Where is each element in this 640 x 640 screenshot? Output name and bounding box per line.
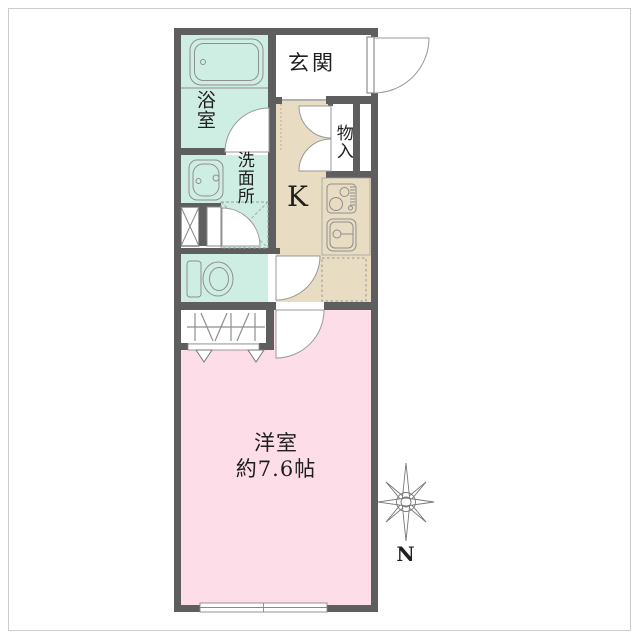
label-western-room: 洋室 約7.6帖: [191, 430, 361, 483]
label-entrance: 玄関: [288, 52, 358, 75]
western-room-size: 約7.6帖: [191, 456, 361, 482]
fridge-space: [322, 258, 366, 301]
laundry-box-icon: [181, 207, 199, 246]
label-compass-north: N: [394, 543, 418, 565]
closet-hanger-icon: [187, 313, 265, 341]
toilet-door-icon: [276, 256, 320, 300]
label-washroom: 洗面所: [234, 151, 253, 213]
label-storage: 物入: [333, 124, 352, 170]
storage-doors-icon: [299, 106, 331, 171]
western-room-door-icon: [276, 310, 324, 358]
fixtures-overlay: [0, 0, 640, 640]
western-room-name: 洋室: [191, 430, 361, 456]
label-bathroom: 浴室: [194, 90, 215, 150]
bathroom-door-icon: [225, 108, 269, 152]
kitchen-counter: [322, 178, 370, 255]
closet-doors-icon: [188, 344, 264, 362]
washbasin-icon: [189, 160, 223, 200]
bathtub-icon: [181, 39, 268, 88]
label-kitchen: K: [287, 182, 309, 213]
entrance-door-icon: [367, 37, 429, 93]
toilet-icon: [187, 261, 233, 297]
floor-plan: 浴室 玄関 洗面所 物入 K 洋室 約7.6帖 N: [0, 0, 640, 640]
compass-rose-icon: [378, 463, 434, 541]
south-window-icon: [200, 603, 327, 612]
